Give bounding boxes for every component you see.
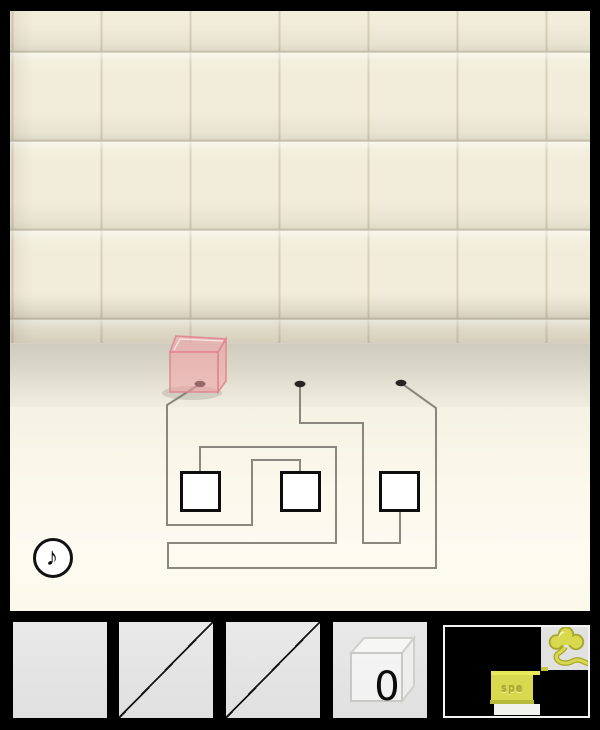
selected-item-view[interactable]: spe: [443, 625, 590, 718]
gold-flower-icon: [541, 626, 589, 671]
puzzle-box-1[interactable]: [180, 471, 221, 512]
inventory-slot-1[interactable]: [13, 622, 107, 718]
page: { "theme": { "tile": "#f2edda", "grout":…: [0, 0, 600, 730]
gold-plate-reflection: [494, 704, 540, 715]
inventory-slot-4[interactable]: 0: [333, 622, 427, 718]
puzzle-box-3[interactable]: [379, 471, 420, 512]
inventory-slot-3[interactable]: [226, 622, 320, 718]
puzzle-box-2[interactable]: [280, 471, 321, 512]
gold-plate-text: spe: [491, 675, 533, 701]
socket-dot-3: [396, 380, 407, 386]
socket-dot-2: [295, 381, 306, 387]
cube-count-label: 0: [373, 668, 401, 706]
wire-path-2: [300, 384, 400, 543]
wire-puzzle-layer: [10, 11, 590, 611]
game-scene: ♪: [10, 11, 590, 611]
pink-cube-front[interactable]: [170, 352, 218, 392]
music-note-icon: ♪: [46, 545, 59, 570]
pink-cube-top: [170, 336, 226, 352]
gold-plate-item[interactable]: spe: [491, 671, 541, 716]
inventory-slot-2[interactable]: [119, 622, 213, 718]
music-toggle-button[interactable]: ♪: [33, 538, 73, 578]
inventory-slot-6[interactable]: [541, 626, 589, 670]
